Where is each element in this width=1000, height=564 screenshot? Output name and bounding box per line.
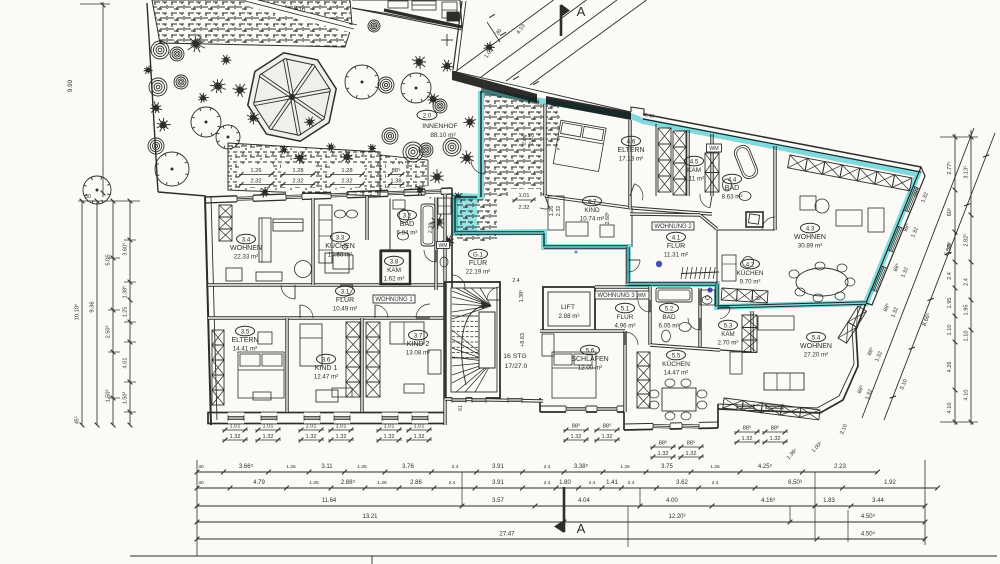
svg-text:4.1: 4.1 bbox=[672, 234, 681, 241]
svg-text:2.39: 2.39 bbox=[428, 223, 435, 234]
svg-text:1.01: 1.01 bbox=[230, 423, 241, 429]
svg-text:5.2: 5.2 bbox=[665, 305, 674, 312]
svg-text:KIND: KIND bbox=[584, 207, 600, 214]
svg-text:KÜCHEN: KÜCHEN bbox=[662, 360, 690, 368]
svg-text:1.32: 1.32 bbox=[751, 296, 761, 302]
svg-text:4.79: 4.79 bbox=[253, 480, 265, 486]
svg-text:1.62 m²: 1.62 m² bbox=[384, 276, 405, 283]
svg-text:SCHLAFEN: SCHLAFEN bbox=[571, 356, 608, 363]
svg-text:3.91: 3.91 bbox=[492, 480, 504, 486]
svg-text:KAM: KAM bbox=[721, 331, 734, 338]
svg-text:A: A bbox=[577, 521, 586, 536]
svg-text:1.25: 1.25 bbox=[377, 480, 387, 486]
svg-text:+8.63: +8.63 bbox=[520, 333, 526, 347]
svg-text:9.70 m²: 9.70 m² bbox=[740, 279, 761, 286]
svg-text:3.75: 3.75 bbox=[661, 464, 673, 470]
svg-text:FLUR: FLUR bbox=[617, 314, 634, 321]
svg-text:1.26: 1.26 bbox=[549, 206, 555, 217]
svg-text:KAM: KAM bbox=[387, 267, 401, 274]
svg-text:1.01: 1.01 bbox=[384, 423, 395, 429]
svg-text:5.3: 5.3 bbox=[724, 322, 733, 329]
svg-text:KÜCHEN: KÜCHEN bbox=[325, 242, 355, 250]
svg-text:1.26: 1.26 bbox=[250, 168, 261, 174]
svg-text:17.13 m²: 17.13 m² bbox=[619, 156, 643, 163]
svg-text:2.50³: 2.50³ bbox=[106, 325, 112, 338]
svg-text:16 STG: 16 STG bbox=[503, 353, 526, 360]
svg-text:3.91: 3.91 bbox=[492, 464, 504, 470]
svg-text:4.50⁵: 4.50⁵ bbox=[861, 513, 876, 520]
svg-text:22.33 m²: 22.33 m² bbox=[234, 254, 258, 261]
svg-text:1.28: 1.28 bbox=[292, 168, 303, 174]
svg-text:2.4: 2.4 bbox=[544, 480, 551, 486]
svg-text:1.32: 1.32 bbox=[384, 434, 395, 440]
svg-text:45⁵: 45⁵ bbox=[75, 416, 81, 424]
svg-text:4.01: 4.01 bbox=[123, 358, 129, 369]
svg-text:2.32: 2.32 bbox=[341, 179, 352, 185]
svg-text:3.76: 3.76 bbox=[402, 464, 414, 470]
svg-text:2.32: 2.32 bbox=[250, 179, 261, 185]
svg-text:2.4: 2.4 bbox=[628, 480, 635, 486]
svg-text:2.23: 2.23 bbox=[834, 464, 846, 470]
svg-text:WOHNUNG 2: WOHNUNG 2 bbox=[654, 224, 692, 230]
svg-text:2.4: 2.4 bbox=[964, 278, 970, 286]
svg-text:10.74 m²: 10.74 m² bbox=[580, 216, 604, 223]
svg-text:KAM: KAM bbox=[687, 167, 701, 174]
svg-text:4.4: 4.4 bbox=[728, 176, 737, 183]
svg-text:1.25: 1.25 bbox=[710, 464, 720, 470]
svg-text:5.1: 5.1 bbox=[621, 305, 630, 312]
svg-text:3.38⁵: 3.38⁵ bbox=[946, 241, 953, 254]
svg-text:2.4: 2.4 bbox=[452, 464, 459, 470]
svg-text:A: A bbox=[577, 4, 586, 19]
svg-text:88⁵: 88⁵ bbox=[659, 439, 668, 446]
svg-text:2.4: 2.4 bbox=[512, 278, 519, 284]
svg-text:WOHNEN: WOHNEN bbox=[800, 343, 832, 350]
svg-text:LIFT: LIFT bbox=[561, 304, 575, 311]
svg-text:3.2: 3.2 bbox=[403, 212, 412, 219]
svg-text:13.21: 13.21 bbox=[362, 514, 378, 520]
svg-text:88⁵: 88⁵ bbox=[392, 167, 401, 174]
svg-text:1.32: 1.32 bbox=[658, 451, 669, 457]
svg-text:1.25: 1.25 bbox=[357, 464, 367, 470]
svg-text:10.49 m²: 10.49 m² bbox=[333, 306, 357, 313]
svg-text:4.6: 4.6 bbox=[627, 138, 636, 145]
svg-text:9.90: 9.90 bbox=[67, 79, 74, 92]
svg-text:88⁵: 88⁵ bbox=[743, 424, 752, 431]
svg-text:8.63 m²: 8.63 m² bbox=[722, 194, 743, 201]
svg-text:1.32: 1.32 bbox=[686, 451, 697, 457]
svg-text:1.32: 1.32 bbox=[770, 436, 781, 442]
svg-text:1.25: 1.25 bbox=[309, 480, 319, 486]
svg-text:2.32: 2.32 bbox=[556, 206, 562, 217]
svg-text:3.11: 3.11 bbox=[321, 464, 333, 470]
svg-text:WM: WM bbox=[636, 293, 646, 299]
svg-text:2.32: 2.32 bbox=[528, 134, 535, 145]
svg-text:1.25: 1.25 bbox=[123, 307, 129, 318]
svg-text:1.01: 1.01 bbox=[306, 423, 317, 429]
svg-text:G.1: G.1 bbox=[473, 251, 484, 258]
svg-text:1.01: 1.01 bbox=[414, 423, 425, 429]
svg-text:1.83: 1.83 bbox=[823, 498, 835, 504]
svg-text:5.4: 5.4 bbox=[812, 334, 821, 341]
svg-text:3.13⁵: 3.13⁵ bbox=[963, 165, 970, 178]
svg-text:30: 30 bbox=[85, 194, 91, 200]
svg-text:30: 30 bbox=[198, 464, 204, 470]
svg-text:KIND 1: KIND 1 bbox=[315, 365, 338, 372]
svg-text:4.26: 4.26 bbox=[947, 362, 953, 373]
svg-text:BAD: BAD bbox=[400, 221, 414, 228]
svg-text:1.28: 1.28 bbox=[341, 168, 352, 174]
svg-text:2.4: 2.4 bbox=[449, 480, 456, 486]
svg-text:FLUR: FLUR bbox=[336, 297, 354, 304]
svg-text:3.8: 3.8 bbox=[390, 258, 399, 265]
svg-text:KÜCHEN: KÜCHEN bbox=[737, 269, 764, 277]
svg-text:1.32: 1.32 bbox=[571, 434, 582, 440]
svg-text:2.32: 2.32 bbox=[292, 179, 303, 185]
svg-text:1.10: 1.10 bbox=[964, 331, 970, 342]
svg-text:4.96 m²: 4.96 m² bbox=[615, 323, 636, 330]
svg-text:2.82⁵: 2.82⁵ bbox=[963, 233, 970, 246]
svg-text:3.38⁵: 3.38⁵ bbox=[574, 463, 589, 470]
svg-text:3.6: 3.6 bbox=[322, 356, 331, 363]
svg-text:3.44: 3.44 bbox=[872, 498, 884, 504]
svg-text:4.2: 4.2 bbox=[746, 261, 755, 268]
svg-text:6.05 m²: 6.05 m² bbox=[659, 323, 680, 330]
svg-text:2.68⁵: 2.68⁵ bbox=[605, 212, 611, 225]
svg-text:11.64: 11.64 bbox=[322, 498, 337, 504]
svg-text:1.32: 1.32 bbox=[414, 434, 425, 440]
svg-text:3.1: 3.1 bbox=[341, 288, 350, 295]
svg-text:WOHNEN: WOHNEN bbox=[794, 234, 826, 241]
svg-text:1.01: 1.01 bbox=[263, 423, 274, 429]
svg-text:2.77⁵: 2.77⁵ bbox=[946, 161, 953, 174]
svg-text:4.16³: 4.16³ bbox=[761, 498, 775, 504]
svg-text:5.5: 5.5 bbox=[672, 352, 681, 359]
svg-text:6.50³: 6.50³ bbox=[788, 480, 802, 486]
svg-text:4.7: 4.7 bbox=[588, 198, 597, 205]
svg-text:88⁵: 88⁵ bbox=[603, 422, 612, 429]
svg-text:88⁵: 88⁵ bbox=[572, 422, 581, 429]
svg-text:1.32: 1.32 bbox=[336, 434, 347, 440]
svg-text:1.92: 1.92 bbox=[884, 480, 896, 486]
svg-text:30: 30 bbox=[198, 480, 204, 486]
svg-text:INNENHOF: INNENHOF bbox=[422, 123, 458, 130]
svg-text:14.47 m²: 14.47 m² bbox=[664, 370, 688, 377]
svg-text:1.25: 1.25 bbox=[286, 464, 296, 470]
svg-text:5.11 m²: 5.11 m² bbox=[684, 176, 705, 183]
svg-text:4.25⁵: 4.25⁵ bbox=[758, 463, 773, 470]
svg-text:12.20³: 12.20³ bbox=[668, 514, 685, 520]
svg-text:5.05: 5.05 bbox=[106, 254, 112, 265]
svg-text:3.3: 3.3 bbox=[336, 234, 345, 241]
svg-text:3.66⁵: 3.66⁵ bbox=[239, 463, 254, 470]
svg-text:2.32: 2.32 bbox=[519, 205, 530, 211]
svg-text:22.19 m²: 22.19 m² bbox=[466, 269, 490, 276]
svg-text:5.6: 5.6 bbox=[586, 347, 595, 354]
svg-text:30.89 m²: 30.89 m² bbox=[798, 243, 822, 250]
svg-text:3.5: 3.5 bbox=[241, 328, 250, 335]
svg-text:4.3: 4.3 bbox=[806, 225, 815, 232]
svg-text:10.60 m²: 10.60 m² bbox=[328, 252, 352, 259]
svg-text:4.5: 4.5 bbox=[690, 158, 699, 165]
svg-text:BAD: BAD bbox=[725, 185, 739, 192]
svg-text:1.38⁵: 1.38⁵ bbox=[123, 286, 129, 299]
svg-text:1.01: 1.01 bbox=[519, 193, 530, 199]
svg-text:12.00 m²: 12.00 m² bbox=[578, 365, 602, 372]
svg-text:12.47 m²: 12.47 m² bbox=[314, 374, 338, 381]
svg-text:1.41: 1.41 bbox=[606, 480, 618, 486]
svg-text:2.88⁵: 2.88⁵ bbox=[341, 479, 356, 486]
svg-text:4.04: 4.04 bbox=[578, 498, 590, 504]
svg-text:3.7: 3.7 bbox=[414, 332, 423, 339]
svg-text:6.84 m²: 6.84 m² bbox=[397, 230, 418, 237]
svg-text:1.50³: 1.50³ bbox=[106, 389, 112, 402]
svg-text:1.95: 1.95 bbox=[947, 298, 953, 309]
svg-text:88⁵: 88⁵ bbox=[687, 439, 696, 446]
svg-text:ELTERN: ELTERN bbox=[231, 337, 258, 344]
svg-text:88⁵: 88⁵ bbox=[771, 424, 780, 431]
svg-text:FLUR: FLUR bbox=[667, 243, 685, 250]
svg-text:10.10⁵: 10.10⁵ bbox=[74, 303, 81, 321]
svg-text:1.32: 1.32 bbox=[263, 434, 274, 440]
svg-text:WOHNUNG 3: WOHNUNG 3 bbox=[597, 293, 635, 299]
svg-text:4.10: 4.10 bbox=[947, 403, 953, 414]
svg-text:4.00: 4.00 bbox=[666, 498, 678, 504]
svg-text:1.80: 1.80 bbox=[559, 480, 571, 486]
svg-text:2.4: 2.4 bbox=[589, 480, 596, 486]
svg-text:WM: WM bbox=[439, 243, 448, 249]
svg-text:3.60⁵: 3.60⁵ bbox=[122, 242, 129, 255]
svg-text:3.62: 3.62 bbox=[676, 480, 688, 486]
svg-text:1.32: 1.32 bbox=[230, 434, 241, 440]
svg-text:17/27.0: 17/27.0 bbox=[505, 363, 528, 370]
svg-text:1.32: 1.32 bbox=[306, 434, 317, 440]
svg-text:1.25: 1.25 bbox=[620, 464, 630, 470]
svg-text:60⁵: 60⁵ bbox=[946, 208, 953, 217]
svg-text:27.20 m²: 27.20 m² bbox=[804, 352, 828, 359]
svg-text:2.88 m²: 2.88 m² bbox=[559, 313, 580, 320]
svg-text:27.47: 27.47 bbox=[499, 532, 515, 538]
svg-text:1.38: 1.38 bbox=[390, 179, 401, 185]
svg-text:WOHNEN: WOHNEN bbox=[230, 245, 262, 252]
svg-text:11.31 m²: 11.31 m² bbox=[664, 252, 688, 259]
svg-text:61: 61 bbox=[458, 405, 464, 411]
svg-text:1.38⁵: 1.38⁵ bbox=[519, 290, 525, 303]
svg-text:88.10 m²: 88.10 m² bbox=[430, 132, 455, 139]
svg-text:2.4: 2.4 bbox=[947, 272, 953, 280]
svg-text:2.86: 2.86 bbox=[410, 480, 422, 486]
svg-text:1.95: 1.95 bbox=[964, 305, 970, 316]
svg-text:9.36: 9.36 bbox=[90, 301, 96, 312]
svg-text:4.10: 4.10 bbox=[964, 390, 970, 401]
svg-text:3.57: 3.57 bbox=[492, 498, 504, 504]
svg-text:WM: WM bbox=[709, 146, 719, 152]
svg-text:1.10: 1.10 bbox=[947, 325, 953, 336]
svg-text:ELTERN: ELTERN bbox=[617, 147, 644, 154]
svg-text:1.50³: 1.50³ bbox=[123, 392, 129, 404]
svg-text:2.70 m²: 2.70 m² bbox=[718, 340, 739, 347]
svg-text:1.32: 1.32 bbox=[602, 434, 613, 440]
svg-text:FLUR: FLUR bbox=[469, 260, 487, 267]
svg-text:WOHNUNG 1: WOHNUNG 1 bbox=[375, 297, 413, 303]
svg-text:4.50⁵: 4.50⁵ bbox=[861, 531, 876, 538]
svg-text:14.41 m²: 14.41 m² bbox=[233, 346, 257, 353]
svg-text:2.0: 2.0 bbox=[423, 112, 432, 119]
svg-text:BAD: BAD bbox=[662, 314, 676, 321]
svg-text:13.08 m²: 13.08 m² bbox=[406, 350, 430, 357]
svg-text:2.4: 2.4 bbox=[712, 480, 719, 486]
svg-text:1.32: 1.32 bbox=[742, 436, 753, 442]
svg-text:1.01: 1.01 bbox=[336, 423, 347, 429]
svg-text:2.4: 2.4 bbox=[544, 464, 551, 470]
svg-text:KIND 2: KIND 2 bbox=[407, 341, 430, 348]
svg-text:3.4: 3.4 bbox=[242, 236, 251, 243]
